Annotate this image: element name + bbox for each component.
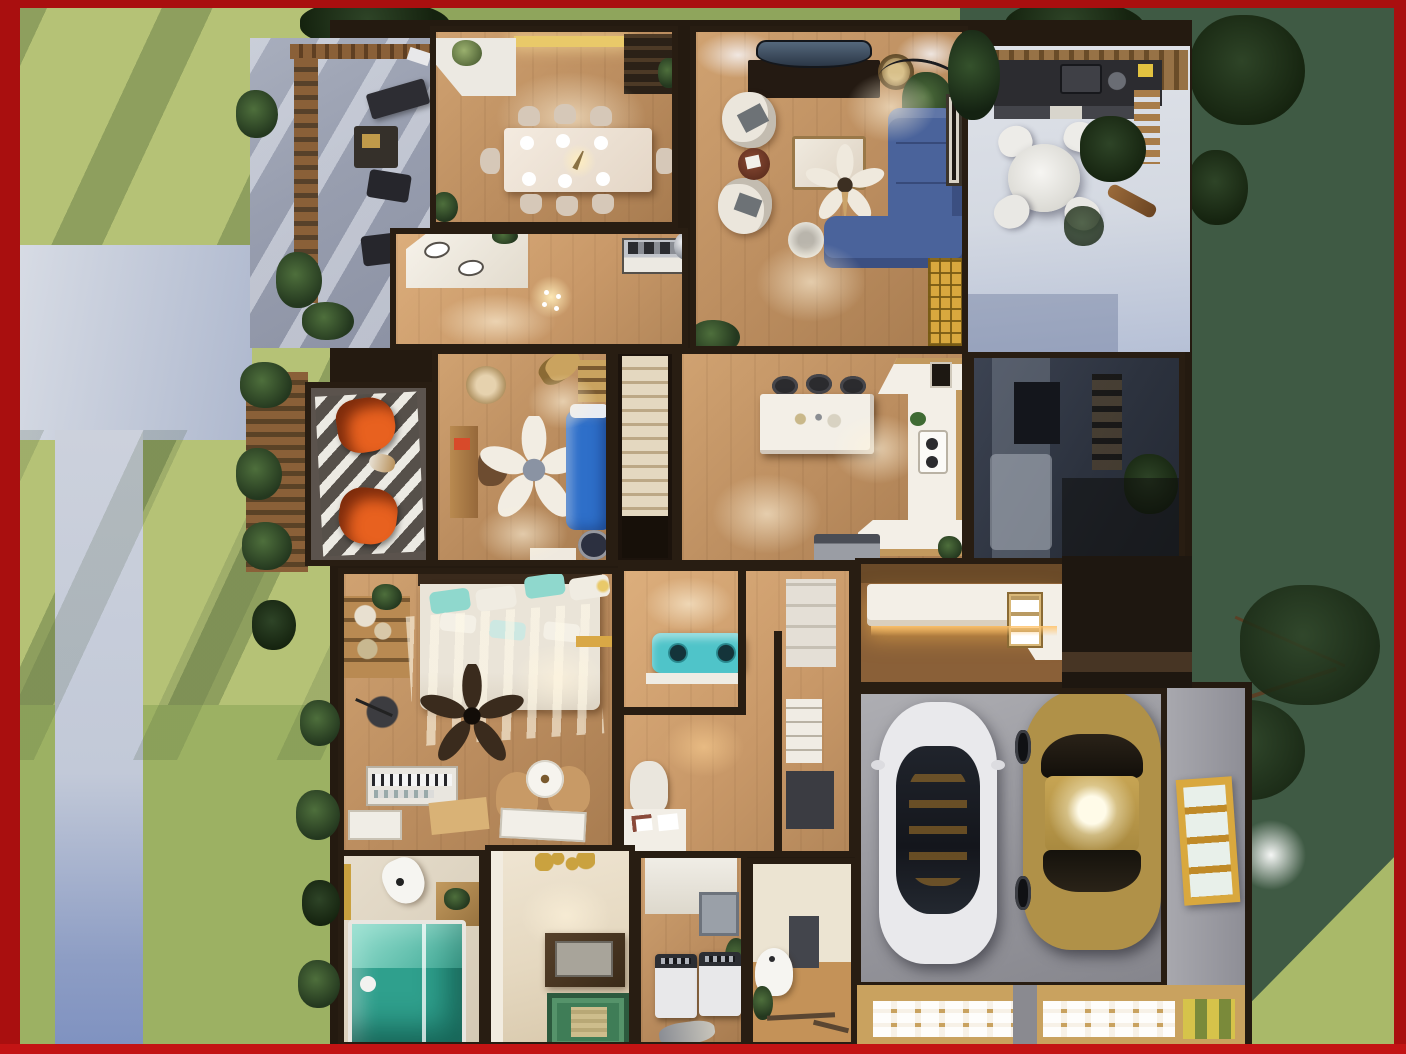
frame-left	[0, 0, 20, 1054]
yellow-wall-shelf	[576, 636, 612, 647]
rear-window	[1043, 850, 1141, 892]
frame-top	[0, 0, 1406, 8]
shaded-ladder-shelf	[1092, 374, 1122, 470]
porch-plant	[302, 302, 354, 340]
console-flowers	[452, 40, 482, 66]
dining-chair	[656, 148, 676, 174]
floor-lamp	[356, 692, 400, 732]
dining-chair	[590, 106, 612, 126]
window-panes	[1183, 785, 1233, 898]
staircase	[612, 348, 678, 566]
towel-bar	[767, 1012, 835, 1021]
mudroom	[855, 558, 1085, 688]
curved-tv	[756, 40, 872, 68]
toilet-flush	[396, 878, 404, 886]
stair-treads	[622, 356, 668, 516]
gold-window-strip	[342, 864, 351, 920]
foyer-hall	[390, 228, 688, 350]
blue-daybed	[566, 410, 612, 530]
piano-keys	[372, 774, 452, 786]
hall-partition	[624, 707, 746, 715]
double-sink	[918, 430, 948, 474]
garage-roof-shadow	[1062, 556, 1192, 690]
glass-reflection	[909, 766, 967, 886]
grill	[1060, 64, 1102, 94]
shaded-roof-edge	[1062, 478, 1182, 566]
place-setting	[596, 172, 610, 186]
rug-center	[571, 1007, 607, 1037]
shelf-baskets	[352, 604, 396, 664]
cubby-cells	[1011, 596, 1039, 644]
porch-table-tray	[362, 134, 380, 148]
shrub	[1188, 150, 1248, 225]
shaded-bedroom	[968, 352, 1185, 566]
patio-shrub	[1064, 206, 1104, 246]
paver-grid-color	[1183, 999, 1235, 1039]
garage-apron	[855, 985, 1245, 1048]
place-setting	[556, 134, 570, 148]
kitchen-wall-art	[930, 362, 952, 388]
roof-edge	[1062, 652, 1192, 672]
towel-bar	[813, 1020, 849, 1034]
side-deck	[305, 382, 432, 566]
dining-room	[430, 26, 678, 228]
vanity-plant	[444, 888, 470, 910]
entry-left-wall	[491, 851, 503, 1048]
gray-cabinet	[789, 916, 819, 968]
hallway-closets	[618, 565, 855, 857]
white-sedan	[879, 702, 997, 964]
floorplan-render	[0, 0, 1406, 1054]
console-top-panel	[555, 941, 613, 977]
paver-grid	[1043, 1001, 1175, 1037]
gold-sedan	[1023, 690, 1161, 950]
place-setting	[558, 174, 572, 188]
white-desk-chair	[630, 761, 668, 813]
dryer-controls	[705, 956, 735, 962]
dining-plant	[432, 192, 458, 222]
porch-plant	[276, 252, 322, 308]
light-pool	[436, 294, 556, 349]
light-pool	[528, 374, 598, 429]
living-room	[690, 26, 968, 352]
island-accessories	[790, 410, 842, 428]
sputnik-light	[535, 853, 595, 871]
tree-canopy	[1190, 15, 1305, 125]
dining-chair	[518, 106, 540, 126]
light-pool	[478, 504, 568, 564]
pergola-plant	[240, 362, 292, 408]
dark-dresser	[786, 771, 834, 829]
window-mullions	[928, 258, 964, 346]
windshield	[1041, 734, 1143, 778]
stair-landing	[622, 516, 668, 558]
yellow-caddy	[1138, 64, 1153, 77]
light-pool	[832, 414, 922, 484]
den-office	[432, 348, 612, 566]
drawer-unit	[786, 699, 822, 763]
dining-chair	[480, 148, 500, 174]
west-shrub	[296, 790, 340, 840]
light-pool	[756, 242, 866, 322]
white-wardrobe	[786, 579, 836, 667]
wall-print	[499, 808, 586, 842]
side-mirror	[871, 760, 885, 770]
gold-ceiling-ring	[592, 578, 614, 594]
green-patterned-rug	[547, 993, 629, 1048]
kitchen	[676, 348, 968, 566]
glass-top-face	[352, 924, 462, 968]
dining-chair	[554, 104, 576, 124]
chandelier-bulbs	[544, 290, 549, 295]
bay-divider	[1013, 985, 1037, 1048]
sink-basins	[926, 438, 938, 450]
desk-items	[454, 438, 470, 450]
bench-underglow	[871, 626, 1057, 636]
gold-roof-glow	[1045, 776, 1139, 852]
place-setting	[520, 136, 534, 150]
light-pool	[846, 72, 936, 142]
dining-chair	[520, 194, 542, 214]
west-shrub	[298, 960, 340, 1008]
teal-glass-shower	[348, 920, 466, 1048]
bench-speaker	[716, 643, 736, 663]
ceiling-fan	[804, 144, 886, 226]
west-shrub	[252, 600, 296, 650]
wheel	[1015, 876, 1031, 910]
shelf-plant	[372, 584, 402, 610]
tree-leaves	[1240, 585, 1380, 705]
glass-divider	[422, 924, 426, 1048]
shaded-bed	[990, 454, 1052, 550]
west-shrub	[302, 880, 340, 926]
tan-mat	[428, 797, 489, 835]
table-motif	[538, 772, 552, 786]
washer-controls	[661, 958, 691, 964]
entry-room	[485, 845, 635, 1048]
garage-window	[1176, 776, 1241, 906]
paver-grid	[873, 1001, 1013, 1037]
bench-shelf	[646, 673, 746, 684]
kids-artwork	[631, 814, 653, 832]
west-shrub	[300, 700, 340, 746]
bar-stool	[806, 374, 832, 394]
bar-stool	[840, 376, 866, 396]
light-pool	[514, 644, 604, 714]
frame-right	[1394, 0, 1406, 1054]
bathroom	[338, 850, 485, 1048]
bench-speaker	[668, 643, 688, 663]
hall-partition	[738, 571, 746, 711]
outdoor-counter	[994, 106, 1154, 119]
wicker-chair	[466, 366, 506, 404]
tree-trunk	[1106, 183, 1158, 220]
pergola-plant	[236, 448, 282, 500]
porch-plant	[236, 90, 278, 138]
grill-cart	[1106, 70, 1128, 92]
bar-stool	[772, 376, 798, 396]
doorway-glow	[664, 717, 744, 777]
light-pool	[644, 577, 734, 631]
dark-ceiling-fan	[420, 664, 524, 768]
pergola-plant	[242, 522, 292, 570]
shower-head	[360, 976, 376, 992]
dining-window-lit	[514, 36, 626, 47]
dining-plant	[658, 58, 678, 88]
garage	[855, 688, 1167, 988]
patio-planter	[1080, 116, 1146, 182]
piano-controls	[374, 790, 434, 798]
frame-bottom	[0, 1044, 1406, 1054]
sink-faucet	[769, 956, 775, 962]
covered-patio	[968, 46, 1190, 352]
north-plant	[948, 30, 1000, 120]
side-mirror	[991, 760, 1005, 770]
hall-plant	[492, 228, 518, 244]
laundry-room	[635, 852, 747, 1048]
shaded-dresser	[1014, 382, 1060, 444]
range-burners	[628, 242, 678, 254]
herbs-on-counter	[910, 412, 926, 426]
hall-partition	[774, 631, 782, 857]
kitchen-plant	[938, 536, 962, 560]
patterned-pouf	[578, 530, 610, 560]
white-mat	[348, 810, 402, 840]
dining-chair	[556, 196, 578, 216]
wall-board	[699, 892, 739, 936]
keyboard-piano	[366, 766, 458, 806]
deck-pergola	[246, 372, 308, 572]
light-pool	[712, 474, 822, 554]
place-setting	[522, 172, 536, 186]
patio-step-shadow	[968, 294, 1118, 352]
dining-chair	[592, 194, 614, 214]
place-setting	[594, 136, 608, 150]
driveway	[0, 245, 252, 440]
guest-bath	[747, 858, 857, 1048]
master-bedroom	[338, 568, 618, 856]
wheel	[1015, 730, 1031, 764]
toilet	[376, 852, 431, 910]
